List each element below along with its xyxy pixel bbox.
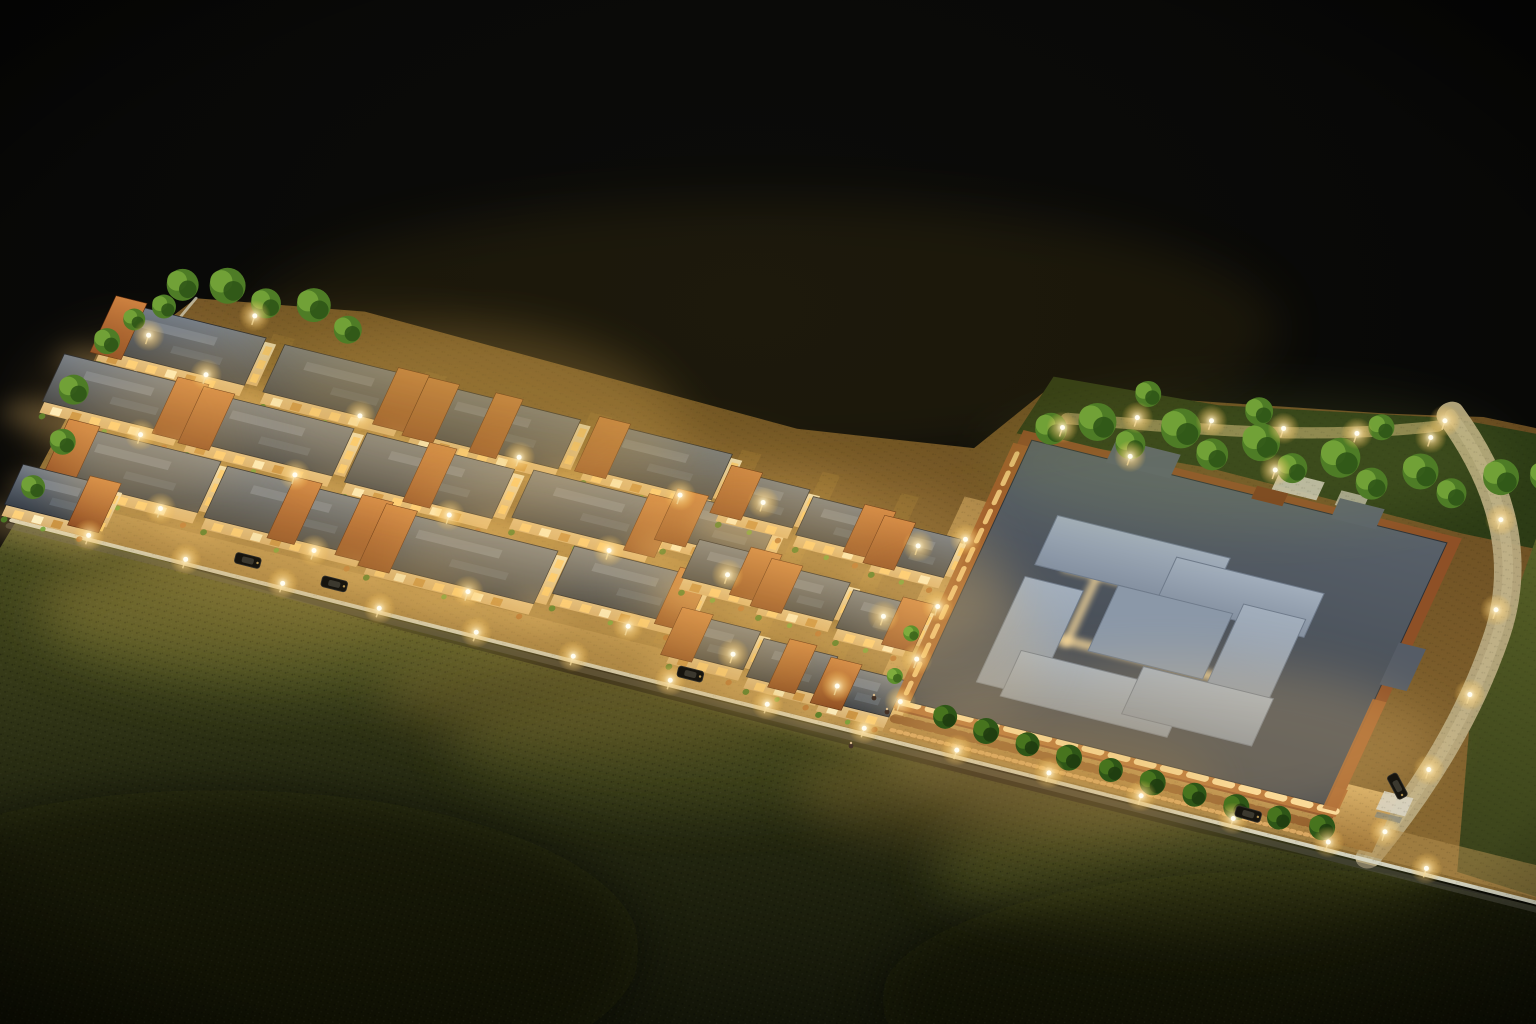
street-lamp bbox=[664, 479, 696, 511]
palm-tree bbox=[973, 718, 999, 744]
tree bbox=[59, 375, 89, 405]
tree bbox=[1078, 403, 1116, 441]
canopy-shade bbox=[1192, 792, 1205, 805]
canopy-shade bbox=[1276, 814, 1289, 827]
tree bbox=[152, 295, 176, 319]
street-lamp bbox=[1259, 454, 1291, 486]
street-lamp bbox=[1480, 594, 1512, 626]
lamp-bulb bbox=[292, 472, 297, 477]
street-lamp bbox=[433, 499, 465, 531]
lamp-bulb bbox=[1426, 767, 1431, 772]
street-lamp bbox=[1369, 816, 1401, 848]
street-lamp bbox=[593, 535, 625, 567]
lamp-bulb bbox=[1281, 426, 1286, 431]
tree bbox=[1356, 468, 1388, 500]
street-lamp bbox=[1196, 405, 1228, 437]
tree bbox=[1196, 438, 1228, 470]
street-lamp bbox=[821, 670, 853, 702]
tree bbox=[1436, 478, 1466, 508]
lamp-bulb bbox=[158, 506, 163, 511]
canopy-shade bbox=[1066, 754, 1080, 768]
figure-body bbox=[849, 744, 854, 749]
palm-tree bbox=[1016, 732, 1040, 756]
street-lamp bbox=[949, 523, 981, 555]
canopy-shade bbox=[161, 303, 174, 316]
lamp-bulb bbox=[898, 699, 903, 704]
canopy-shade bbox=[909, 631, 918, 640]
street-lamp bbox=[239, 300, 271, 332]
street-lamp bbox=[298, 535, 330, 567]
canopy-shade bbox=[1497, 472, 1517, 492]
lamp-bulb bbox=[183, 557, 188, 562]
ambient-glow bbox=[855, 570, 1045, 720]
lamp-bulb bbox=[731, 652, 736, 657]
canopy-shade bbox=[1448, 489, 1465, 506]
tree bbox=[1245, 397, 1273, 425]
lamp-bulb bbox=[1467, 692, 1472, 697]
lamp-bulb bbox=[1046, 770, 1051, 775]
bush bbox=[887, 668, 903, 684]
lamp-bulb bbox=[447, 513, 452, 518]
tree bbox=[334, 316, 362, 344]
street-lamp bbox=[190, 359, 222, 391]
bush bbox=[903, 625, 919, 641]
lamp-bulb bbox=[474, 630, 479, 635]
street-lamp bbox=[460, 616, 492, 648]
street-lamp bbox=[503, 441, 535, 473]
lamp-bulb bbox=[138, 432, 143, 437]
street-lamp bbox=[1413, 754, 1445, 786]
tree bbox=[297, 288, 331, 322]
palm-tree bbox=[1267, 806, 1291, 830]
canopy-shade bbox=[1025, 741, 1038, 754]
canopy-shade bbox=[1336, 452, 1358, 474]
tree bbox=[1483, 459, 1519, 495]
street-lamp bbox=[125, 419, 157, 451]
lamp-bulb bbox=[357, 413, 362, 418]
lamp-bulb bbox=[312, 548, 317, 553]
lamp-bulb bbox=[935, 604, 940, 609]
street-lamp bbox=[1341, 417, 1373, 449]
street-lamp bbox=[1312, 826, 1344, 858]
lamp-bulb bbox=[761, 500, 766, 505]
street-lamp bbox=[712, 559, 744, 591]
figure-head bbox=[850, 742, 852, 744]
canopy-shade bbox=[1416, 467, 1436, 487]
lamp-bulb bbox=[914, 657, 919, 662]
lamp-bulb bbox=[146, 333, 151, 338]
street-lamp bbox=[902, 530, 934, 562]
lamp-bulb bbox=[607, 548, 612, 553]
canopy-shade bbox=[1368, 479, 1386, 497]
street-lamp bbox=[1114, 440, 1146, 472]
figure-body bbox=[872, 696, 877, 701]
street-lamp bbox=[279, 459, 311, 491]
lamp-bulb bbox=[862, 726, 867, 731]
lamp-bulb bbox=[1428, 435, 1433, 440]
architectural-model-photo: Night aerial photograph of an illuminate… bbox=[0, 0, 1536, 1024]
street-lamp bbox=[867, 600, 899, 632]
street-lamp bbox=[557, 640, 589, 672]
street-lamp bbox=[363, 592, 395, 624]
lamp-bulb bbox=[1139, 793, 1144, 798]
palm-tree bbox=[1099, 758, 1123, 782]
lamp-bulb bbox=[835, 684, 840, 689]
scene-canvas bbox=[0, 0, 1536, 1024]
street-lamp bbox=[452, 576, 484, 608]
canopy-shade bbox=[310, 301, 329, 320]
figure-head bbox=[886, 708, 888, 710]
figure-head bbox=[873, 694, 875, 696]
lamp-bulb bbox=[1326, 840, 1331, 845]
canopy-shade bbox=[179, 281, 197, 299]
lamp-bulb bbox=[765, 702, 770, 707]
street-lamp bbox=[170, 543, 202, 575]
canopy-shade bbox=[345, 326, 360, 341]
street-lamp bbox=[1454, 679, 1486, 711]
tree bbox=[1402, 453, 1438, 489]
tree bbox=[50, 429, 76, 455]
lamp-bulb bbox=[571, 654, 576, 659]
lamp-bulb bbox=[1424, 866, 1429, 871]
canopy-shade bbox=[30, 484, 43, 497]
canopy-shade bbox=[1209, 450, 1227, 468]
lamp-bulb bbox=[881, 614, 886, 619]
lamp-bulb bbox=[204, 372, 209, 377]
street-lamp bbox=[922, 590, 954, 622]
palm-tree bbox=[1183, 783, 1207, 807]
lamp-bulb bbox=[725, 572, 730, 577]
canopy-shade bbox=[1256, 407, 1271, 422]
tree bbox=[1161, 408, 1201, 448]
lamp-bulb bbox=[517, 455, 522, 460]
lamp-bulb bbox=[86, 533, 91, 538]
canopy-shade bbox=[1093, 417, 1114, 438]
canopy-shade bbox=[1378, 424, 1392, 438]
street-lamp bbox=[144, 492, 176, 524]
canopy-shade bbox=[1108, 767, 1121, 780]
street-lamp bbox=[848, 712, 880, 744]
street-lamp bbox=[267, 567, 299, 599]
tree bbox=[167, 269, 199, 301]
canopy-shade bbox=[70, 386, 87, 403]
lamp-bulb bbox=[678, 493, 683, 498]
canopy-shade bbox=[1289, 464, 1306, 481]
street-lamp bbox=[1410, 852, 1442, 884]
lamp-bulb bbox=[954, 748, 959, 753]
lamp-bulb bbox=[1209, 418, 1214, 423]
ambient-glow bbox=[380, 626, 840, 750]
street-lamp bbox=[344, 400, 376, 432]
lamp-bulb bbox=[963, 537, 968, 542]
lamp-bulb bbox=[1382, 829, 1387, 834]
street-lamp bbox=[901, 643, 933, 675]
lamp-bulb bbox=[377, 606, 382, 611]
street-lamp bbox=[1125, 780, 1157, 812]
street-lamp bbox=[941, 734, 973, 766]
street-lamp bbox=[1429, 405, 1461, 437]
lamp-bulb bbox=[252, 313, 257, 318]
street-lamp bbox=[1268, 412, 1300, 444]
lamp-bulb bbox=[1231, 816, 1236, 821]
canopy-shade bbox=[983, 728, 997, 742]
street-lamp bbox=[73, 519, 105, 551]
street-lamp bbox=[1121, 402, 1153, 434]
street-lamp bbox=[751, 688, 783, 720]
canopy-shade bbox=[893, 674, 902, 683]
lamp-bulb bbox=[1442, 418, 1447, 423]
palm-tree bbox=[933, 705, 957, 729]
street-lamp bbox=[1033, 757, 1065, 789]
tree bbox=[94, 328, 120, 354]
street-lamp bbox=[1046, 411, 1078, 443]
canopy-shade bbox=[1145, 390, 1159, 404]
canopy-shade bbox=[60, 438, 74, 452]
lamp-bulb bbox=[1273, 467, 1278, 472]
lamp-bulb bbox=[916, 543, 921, 548]
street-lamp bbox=[612, 610, 644, 642]
canopy-shade bbox=[223, 281, 243, 301]
lamp-bulb bbox=[465, 589, 470, 594]
lamp-bulb bbox=[1060, 425, 1065, 430]
lamp-bulb bbox=[668, 678, 673, 683]
lamp-bulb bbox=[626, 624, 631, 629]
street-lamp bbox=[717, 638, 749, 670]
figure-body bbox=[885, 710, 890, 715]
street-lamp bbox=[747, 486, 779, 518]
lamp-bulb bbox=[1354, 431, 1359, 436]
lamp-bulb bbox=[1494, 607, 1499, 612]
canopy-shade bbox=[942, 714, 955, 727]
canopy-shade bbox=[1176, 423, 1198, 445]
tree bbox=[21, 475, 45, 499]
lamp-bulb bbox=[1128, 454, 1133, 459]
lamp-bulb bbox=[1135, 415, 1140, 420]
lamp-bulb bbox=[280, 581, 285, 586]
street-lamp bbox=[133, 319, 165, 351]
tree bbox=[210, 268, 246, 304]
canopy-shade bbox=[104, 338, 118, 352]
lamp-bulb bbox=[1498, 517, 1503, 522]
street-lamp bbox=[1485, 504, 1517, 536]
